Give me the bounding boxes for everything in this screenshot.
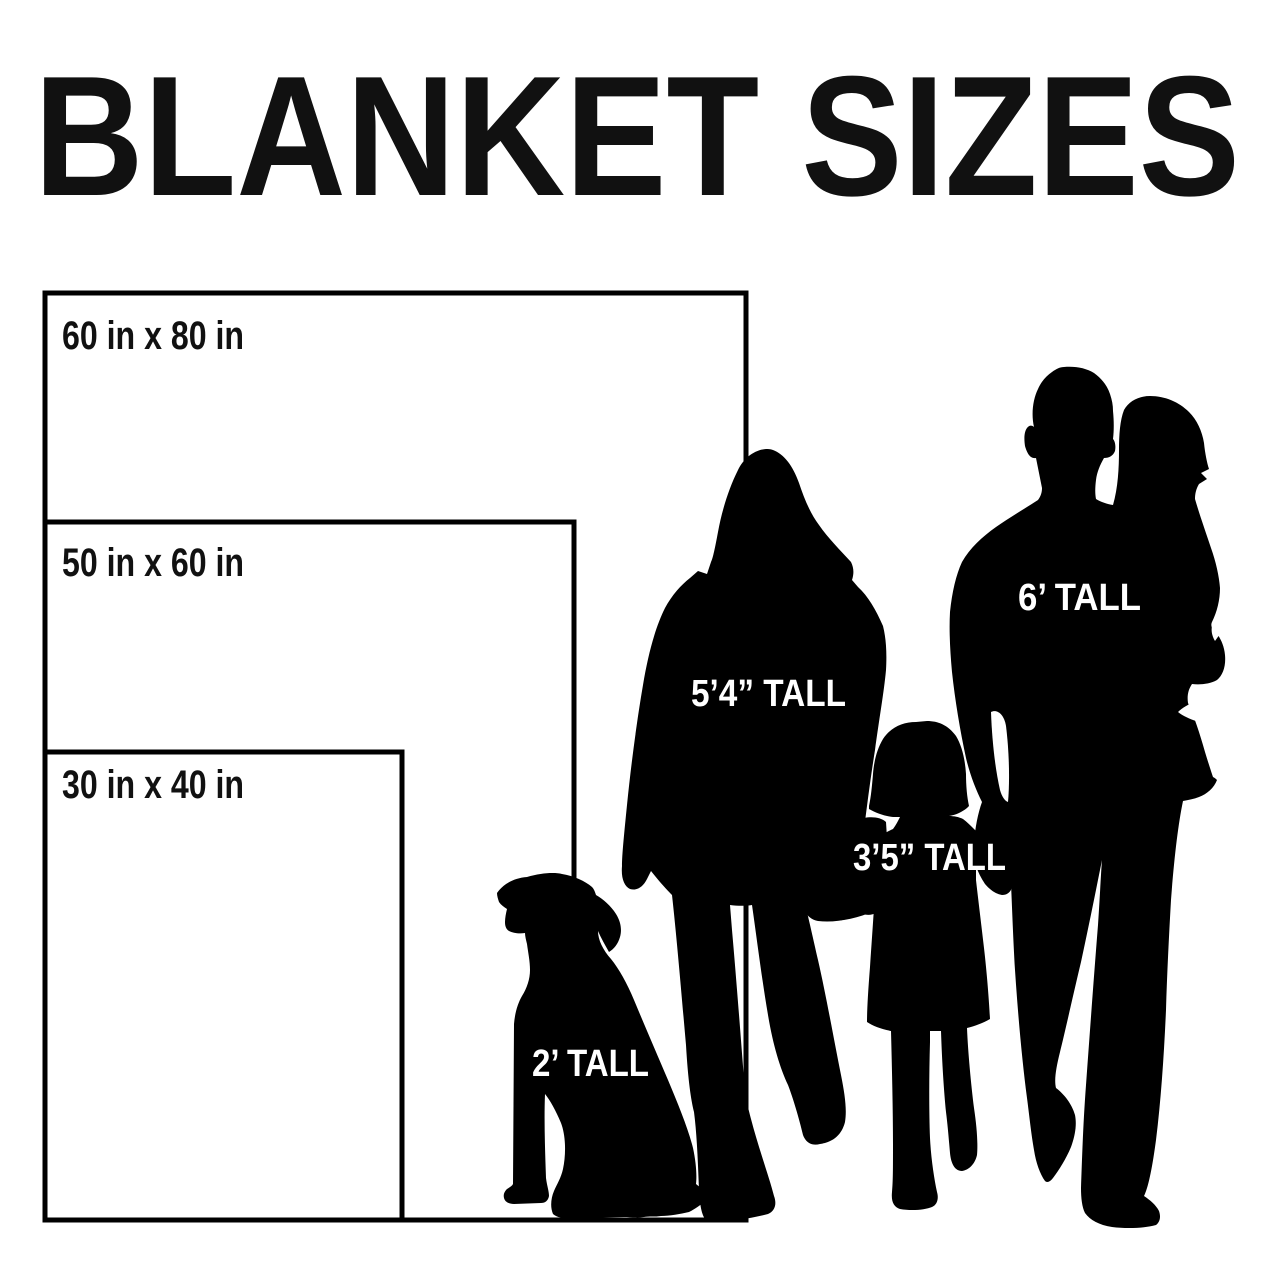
svg-text:5’4” TALL: 5’4” TALL: [691, 673, 846, 715]
svg-text:6’ TALL: 6’ TALL: [1018, 577, 1141, 619]
svg-text:BLANKET SIZES: BLANKET SIZES: [34, 41, 1240, 232]
svg-text:3’5” TALL: 3’5” TALL: [853, 837, 1006, 879]
svg-text:60 in x 80 in: 60 in x 80 in: [62, 314, 244, 358]
svg-text:50 in x 60 in: 50 in x 60 in: [62, 541, 244, 585]
svg-text:30 in x 40 in: 30 in x 40 in: [62, 763, 244, 807]
svg-text:2’ TALL: 2’ TALL: [532, 1043, 649, 1085]
